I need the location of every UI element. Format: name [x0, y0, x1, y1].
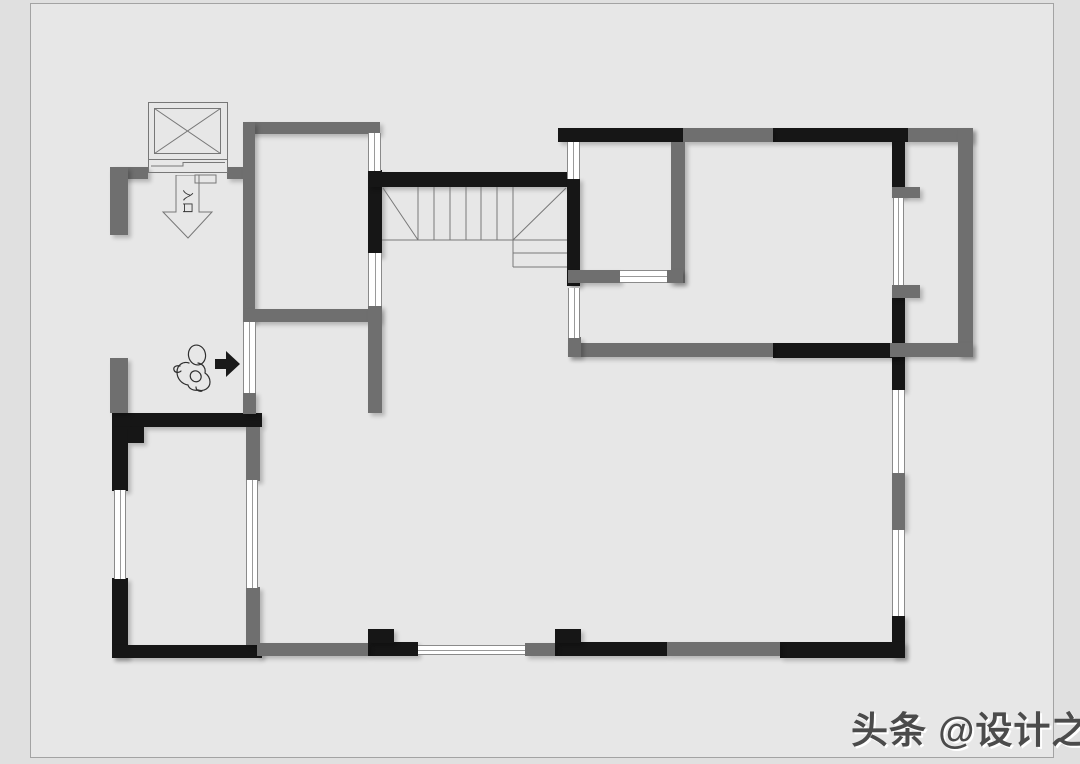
window-segment	[243, 322, 256, 393]
page-background: 入口 头条 @设计之师	[0, 0, 1080, 764]
wall-segment-gray	[246, 587, 260, 645]
entry-direction-arrow-icon	[215, 349, 241, 379]
window-segment	[892, 390, 905, 473]
wall-segment-black	[773, 343, 898, 358]
window-segment	[246, 480, 258, 588]
wall-segment-gray	[568, 270, 620, 283]
wall-segment-gray	[246, 427, 260, 481]
wall-segment-gray	[368, 305, 382, 413]
wall-segment-black	[368, 629, 394, 643]
wall-segment-gray	[667, 642, 780, 656]
wall-segment-black	[558, 128, 683, 142]
wall-segment-black	[112, 413, 262, 427]
wall-segment-gray	[227, 167, 243, 179]
window-segment	[620, 270, 667, 283]
wall-segment-gray	[243, 122, 255, 322]
wall-segment-gray	[243, 122, 380, 134]
wall-segment-gray	[568, 337, 581, 357]
person-figure-icon	[166, 338, 218, 394]
wall-segment-gray	[667, 270, 683, 283]
wall-segment-black	[773, 128, 908, 142]
wall-segment-gray	[568, 343, 773, 357]
wall-segment-gray	[243, 309, 380, 322]
window-segment	[567, 142, 580, 179]
window-segment	[893, 198, 904, 285]
wall-segment-gray	[671, 142, 685, 283]
window-segment	[418, 645, 525, 655]
wall-segment-gray	[958, 128, 973, 357]
watermark: 头条 @设计之师	[851, 700, 1080, 754]
wall-segment-gray	[257, 643, 368, 656]
window-segment	[892, 530, 905, 616]
wall-segment-black	[128, 427, 144, 443]
wall-segment-gray	[890, 343, 973, 357]
entrance-label: 入口	[180, 185, 194, 219]
window-segment	[568, 288, 580, 338]
wall-segment-black	[112, 645, 262, 658]
wall-segment-black	[368, 642, 418, 656]
wall-segment-gray	[892, 187, 920, 198]
window-segment	[114, 490, 126, 579]
wall-segment-gray	[243, 392, 256, 414]
wall-segment-gray	[892, 472, 905, 530]
wall-segment-black	[780, 642, 905, 658]
wall-segment-gray	[892, 285, 920, 298]
wall-segment-black	[112, 427, 128, 491]
stairs-icon	[380, 185, 580, 271]
wall-segment-gray	[110, 167, 128, 235]
wall-segment-black	[555, 642, 667, 656]
wall-segment-black	[555, 629, 581, 643]
window-segment	[368, 133, 381, 171]
wall-segment-gray	[110, 358, 128, 413]
wall-segment-gray	[525, 643, 555, 656]
wall-segment-gray	[683, 128, 773, 142]
